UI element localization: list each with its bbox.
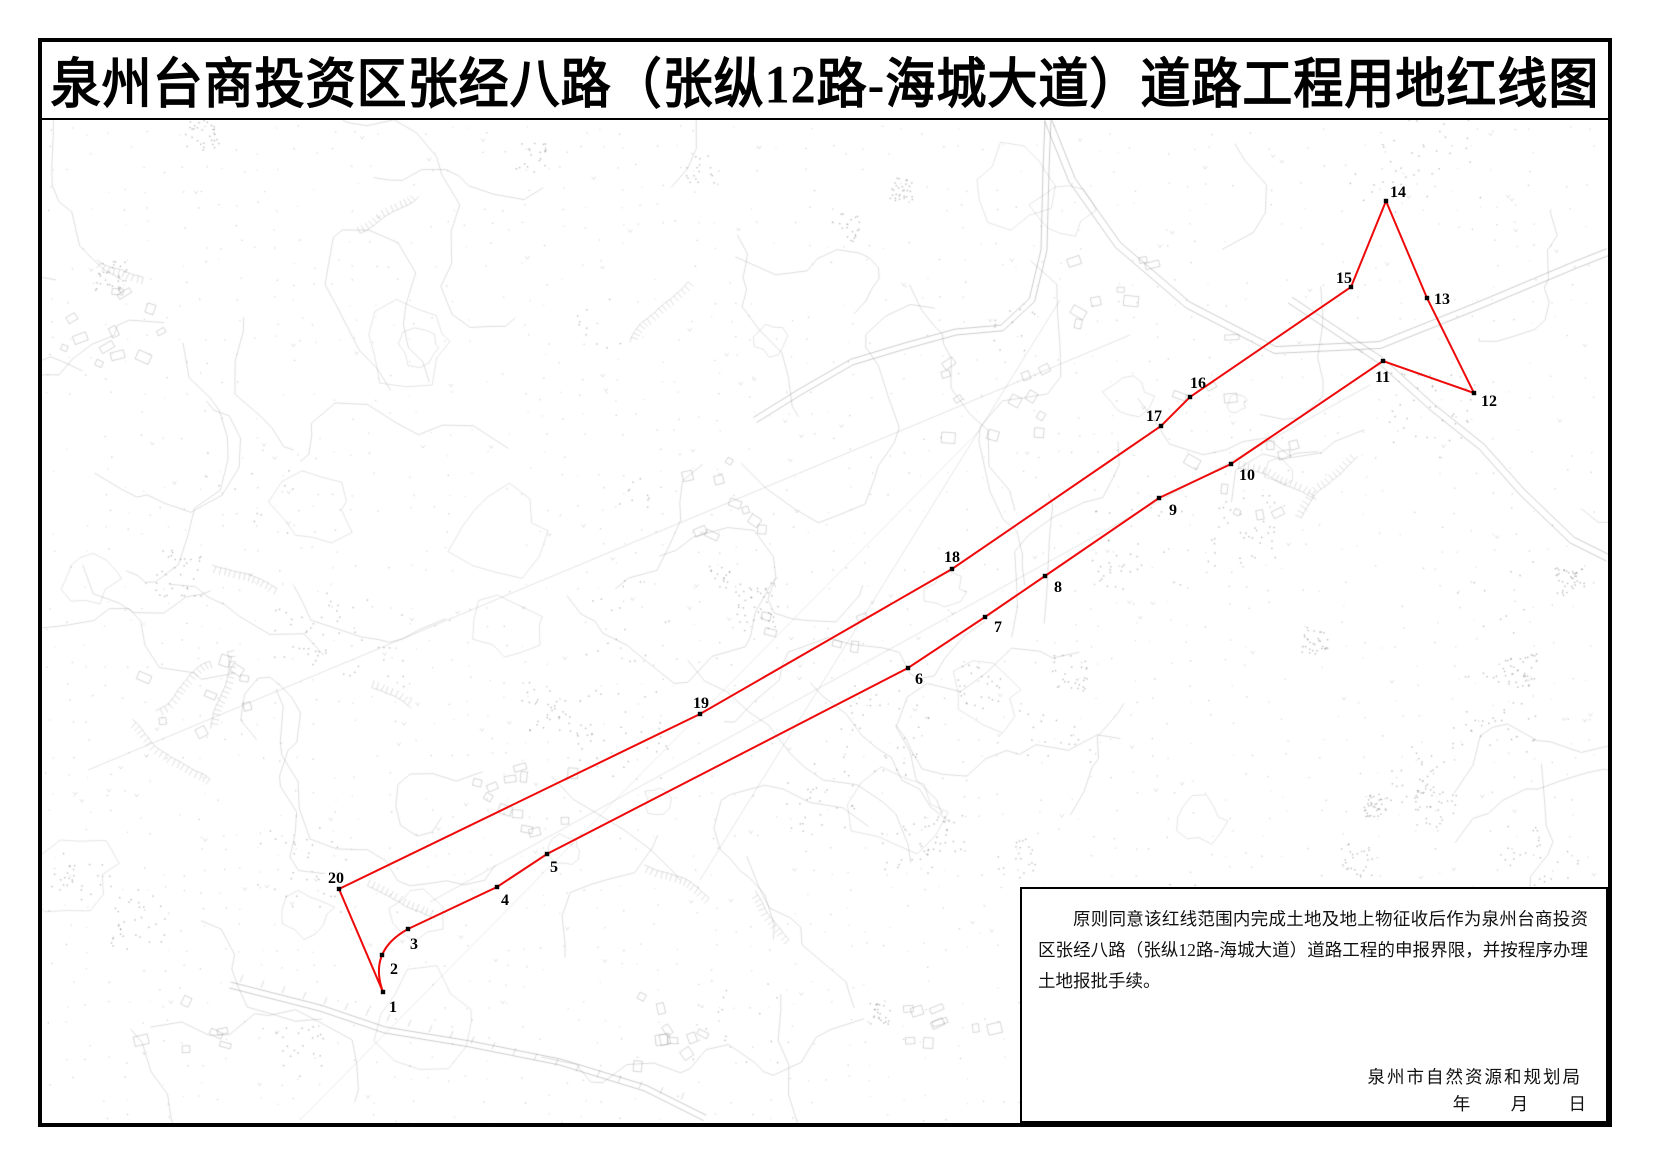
vertex-label-10: 10 (1239, 467, 1255, 484)
vertex-label-12: 12 (1481, 393, 1497, 410)
vertex-label-3: 3 (410, 936, 418, 953)
vertex-dot-1 (381, 990, 385, 994)
map-title: 泉州台商投资区张经八路（张纵12路-海城大道）道路工程用地红线图 (51, 41, 1600, 119)
vertex-dot-3 (406, 927, 410, 931)
vertex-label-15: 15 (1336, 270, 1352, 287)
vertex-label-18: 18 (944, 549, 960, 566)
date-day-blank: 日 (1569, 1091, 1587, 1116)
vertex-label-20: 20 (328, 870, 344, 887)
vertex-label-6: 6 (915, 671, 923, 688)
vertex-dot-14 (1384, 199, 1388, 203)
vertex-dot-19 (698, 712, 702, 716)
vertex-label-11: 11 (1375, 369, 1390, 386)
vertex-label-16: 16 (1190, 375, 1206, 392)
date-year-blank: 年 (1453, 1091, 1471, 1116)
vertex-dot-16 (1188, 395, 1192, 399)
vertex-label-5: 5 (550, 859, 558, 876)
vertex-dot-2 (380, 953, 384, 957)
vertex-dot-18 (950, 567, 954, 571)
vertex-dot-13 (1425, 296, 1429, 300)
vertex-label-14: 14 (1390, 184, 1406, 201)
redline-map-page: { "title": "泉州台商投资区张经八路（张纵12路-海城大道）道路工程用… (0, 0, 1654, 1169)
vertex-label-19: 19 (693, 695, 709, 712)
vertex-label-9: 9 (1169, 502, 1177, 519)
date-line: 年 月 日 (1453, 1091, 1586, 1116)
vertex-label-2: 2 (390, 961, 398, 978)
agency-signature: 泉州市自然资源和规划局 (1368, 1064, 1583, 1089)
vertex-dot-9 (1157, 496, 1161, 500)
title-band: 泉州台商投资区张经八路（张纵12路-海城大道）道路工程用地红线图 (42, 42, 1608, 120)
vertex-label-1: 1 (389, 999, 397, 1016)
vertex-dot-20 (337, 887, 341, 891)
redline-polygon (339, 201, 1474, 992)
vertex-dot-8 (1043, 574, 1047, 578)
vertex-dot-11 (1381, 359, 1385, 363)
vertex-dot-12 (1472, 391, 1476, 395)
vertex-dot-6 (906, 666, 910, 670)
vertex-dot-7 (983, 615, 987, 619)
approval-note-box: 原则同意该红线范围内完成土地及地上物征收后作为泉州台商投资区张经八路（张纵12路… (1020, 887, 1608, 1123)
vertex-label-8: 8 (1054, 579, 1062, 596)
vertex-dot-4 (495, 885, 499, 889)
vertex-dot-10 (1229, 462, 1233, 466)
vertex-label-13: 13 (1434, 291, 1450, 308)
vertex-label-4: 4 (501, 892, 509, 909)
date-month-blank: 月 (1511, 1091, 1529, 1116)
vertex-label-17: 17 (1146, 408, 1162, 425)
vertex-dot-5 (545, 852, 549, 856)
vertex-label-7: 7 (994, 619, 1002, 636)
approval-paragraph: 原则同意该红线范围内完成土地及地上物征收后作为泉州台商投资区张经八路（张纵12路… (1022, 889, 1606, 997)
